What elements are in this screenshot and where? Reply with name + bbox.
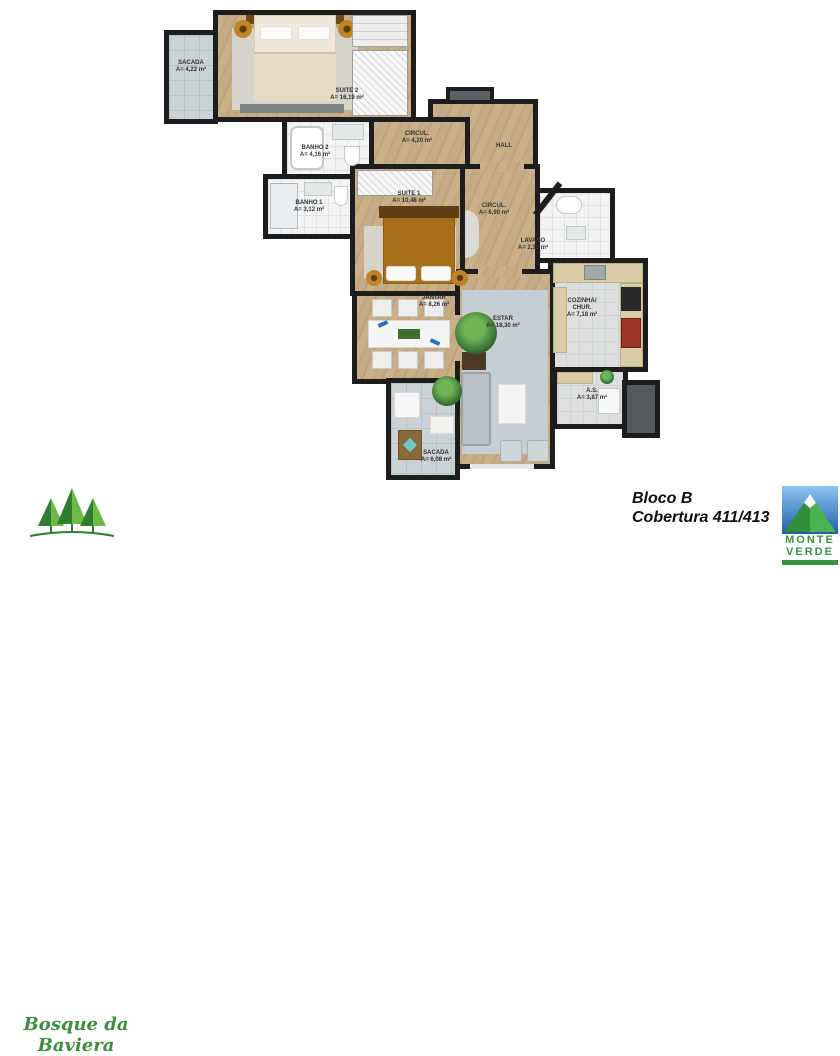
dining-chair-icon [424,351,444,369]
room-label: COZINHA/ CHUR.A= 7,18 m² [564,298,600,319]
wall-niche [465,210,479,258]
block-label: Bloco B [632,489,770,508]
dining-chair-icon [372,299,392,317]
trees-icon [24,486,120,538]
plant-icon [600,370,614,384]
dining-chair-icon [398,351,418,369]
monte-verde-logo: MONTE VERDE [781,486,839,565]
side-table-icon [462,352,486,370]
sink-icon [566,226,586,240]
room-label: SUITE 1A= 10,48 m² [381,191,437,205]
pillow-icon [421,266,451,281]
room-label: A.S.A= 3,87 m² [564,388,620,402]
canopy-icon [379,206,459,218]
counter-icon [557,372,593,384]
room-label: ESTARA= 18,30 m² [475,316,531,330]
dining-chair-icon [372,351,392,369]
sofa-icon [461,372,491,446]
armchair-icon [500,440,522,462]
armchair-icon [394,392,420,418]
unit-info: Bloco B Cobertura 411/413 [632,489,770,527]
builder-name-line2: VERDE [781,546,839,558]
shelf-icon [352,15,408,47]
room-label: HALL [476,143,532,150]
room-label: SACADAA= 6,08 m² [408,450,464,464]
kitchen-sink-icon [584,265,606,280]
tv-console-icon [240,104,344,113]
bosque-da-baviera-logo: Bosque da Baviera [0,483,152,566]
room-label: BANHO 2A= 4,16 m² [287,145,343,159]
coffee-table-icon [498,384,526,424]
builder-logo-bar [782,560,838,565]
room-sacada-top [164,30,218,124]
unit-label: Cobertura 411/413 [632,508,770,527]
pouf-icon [430,416,454,434]
fridge-icon [621,287,641,311]
room-label: CIRCUL.A= 6,90 m² [466,203,522,217]
passage-hall-circulacao [480,161,524,172]
bar-counter-icon [553,287,567,353]
table-runner-icon [398,329,420,339]
floor-plan: SACADAA= 4,22 m² SUITE 2A= 16,19 m² BANH… [0,0,840,566]
development-name: Bosque da Baviera [0,1014,152,1056]
room-label: BANHO 1A= 3,12 m² [281,200,337,214]
toilet-icon [344,146,360,166]
passage-circulacao-estar [478,266,522,277]
nightstand-icon [234,20,252,38]
window-icon [470,464,534,469]
plant-icon [432,376,462,406]
utility-shaft [622,380,660,438]
room-label: SUITE 2A= 16,19 m² [319,88,375,102]
room-label: LAVABOA= 2,15 m² [505,238,561,252]
room-label: SACADAA= 4,22 m² [169,60,213,74]
room-label: CIRCUL.A= 4,20 m² [389,131,445,145]
armchair-icon [527,440,549,462]
nightstand-icon [366,270,382,286]
room-label: JANTARA= 8,26 m² [406,295,462,309]
nightstand-icon [452,270,468,286]
stove-grill-icon [621,318,641,348]
pillow-icon [298,26,330,40]
pillow-icon [386,266,416,281]
mountain-icon [782,486,838,534]
pillow-icon [260,26,292,40]
wardrobe-icon [352,50,408,116]
builder-name-line1: MONTE [781,534,839,546]
entry-mat [446,87,494,104]
toilet-icon [556,196,582,214]
sink-icon [304,182,332,196]
sink-icon [332,124,364,140]
